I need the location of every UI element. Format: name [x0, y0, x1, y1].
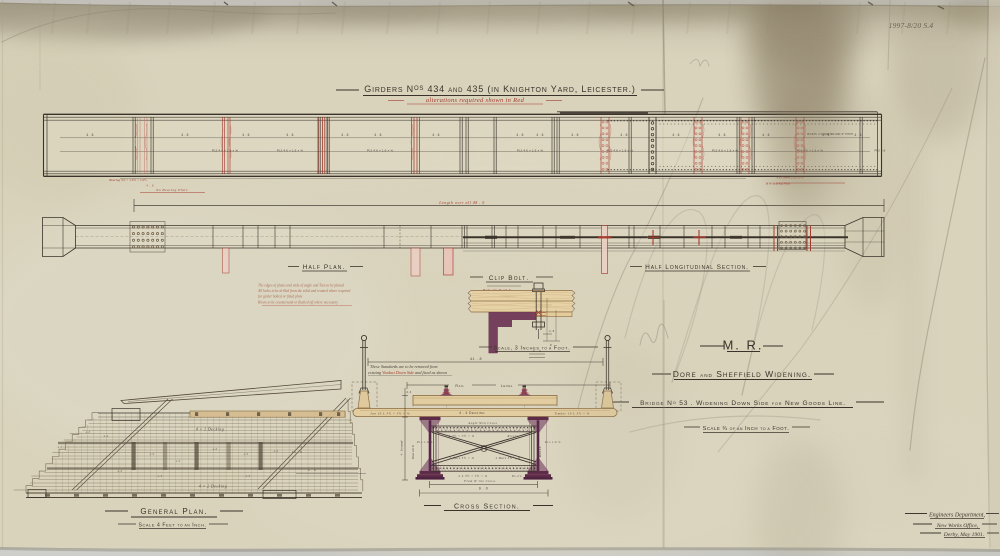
svg-text:4 . 6: 4 . 6	[620, 133, 627, 137]
svg-text:2 Bars 3½ × ⅜: 2 Bars 3½ × ⅜	[496, 456, 521, 460]
svg-text:4.6: 4.6	[213, 448, 218, 451]
svg-text:PLS 4.6 × 1.6 × ⅜: PLS 4.6 × 1.6 × ⅜	[607, 149, 633, 153]
svg-text:Angle WEB CROSS: Angle WEB CROSS	[467, 421, 497, 425]
svg-text:From W THE CROSS: From W THE CROSS	[463, 479, 496, 483]
svg-text:Rivet 4.6 W: Rivet 4.6 W	[411, 445, 415, 460]
svg-text:2 L 3½ × 3½ × ⅜: 2 L 3½ × 3½ × ⅜	[459, 474, 488, 478]
svg-text:4 . 6: 4 . 6	[374, 133, 381, 137]
svg-text:4 . 6: 4 . 6	[571, 133, 578, 137]
svg-text:4 . 4 DECKING: 4 . 4 DECKING	[459, 411, 485, 415]
svg-text:Rivets to be countersunk or fl: Rivets to be countersunk or flushed off …	[257, 300, 338, 304]
svg-text:2 Bars 3½ × ⅜: 2 Bars 3½ × ⅜	[450, 456, 475, 460]
svg-text:4 . 6: 4 . 6	[516, 133, 523, 137]
svg-text:CLIP BOLT.: CLIP BOLT.	[489, 275, 530, 282]
svg-text:4 . 6: 4 . 6	[286, 133, 293, 137]
svg-text:PLS 4.6 × 1.6 × ⅜: PLS 4.6 × 1.6 × ⅜	[212, 149, 238, 153]
svg-text:1.6: 1.6	[549, 329, 555, 333]
svg-text:4 . 6: 4 . 6	[308, 468, 316, 472]
svg-text:Jun 10 L 3½ × 3½ × ⅜: Jun 10 L 3½ × 3½ × ⅜	[370, 412, 410, 416]
svg-text:M. R.: M. R.	[722, 338, 763, 353]
svg-text:PLS 1.6 ⅜: PLS 1.6 ⅜	[544, 441, 561, 444]
svg-text:CROSS SECTION.: CROSS SECTION.	[454, 504, 520, 511]
svg-text:LEVEL: LEVEL	[501, 384, 513, 388]
svg-text:4.6: 4.6	[104, 435, 109, 438]
svg-text:2 L 3½ × 3½ × ⅜: 2 L 3½ × 3½ × ⅜	[446, 434, 475, 438]
svg-text:PLS 4.6: PLS 4.6	[875, 149, 886, 153]
svg-text:PLATE: PLATE	[511, 474, 522, 478]
svg-text:4 . 6: 4 . 6	[146, 184, 154, 188]
svg-text:RAIL: RAIL	[455, 384, 464, 388]
svg-text:4.6: 4.6	[150, 453, 155, 456]
svg-text:4.6: 4.6	[158, 475, 163, 478]
svg-text:4 . 6: 4 . 6	[242, 133, 249, 137]
svg-text:PLS 1.6 ⅜: PLS 1.6 ⅜	[416, 441, 433, 444]
svg-text:4 × 2 Decking: 4 × 2 Decking	[199, 485, 227, 489]
svg-text:4 . 6: 4 . 6	[762, 133, 769, 137]
svg-text:41 . 8: 41 . 8	[470, 357, 482, 361]
svg-text:New Works Office,: New Works Office,	[936, 522, 979, 529]
svg-text:The edges of plates and ends o: The edges of plates and ends of angle an…	[258, 284, 344, 288]
svg-text:Bearing 5.0 × 1.9½ × 1.0½: Bearing 5.0 × 1.9½ × 1.0½	[109, 178, 147, 182]
svg-text:4.6: 4.6	[58, 446, 63, 449]
svg-text:14 . 6: 14 . 6	[292, 450, 303, 454]
svg-text:4 . 6: 4 . 6	[341, 133, 348, 137]
svg-text:existing Viaduct Down Side and: existing Viaduct Down Side and fixed as …	[368, 370, 447, 375]
svg-text:HALF PLAN.: HALF PLAN.	[303, 264, 346, 271]
svg-text:PLS 4.6 × 1.6 × ⅜: PLS 4.6 × 1.6 × ⅜	[367, 149, 393, 153]
svg-text:All holes to be drilled from t: All holes to be drilled from the solid a…	[257, 289, 350, 293]
svg-text:4.4: 4.4	[406, 390, 411, 394]
svg-text:4.6: 4.6	[246, 475, 251, 478]
svg-text:No Bearing Plate: No Bearing Plate	[155, 188, 188, 192]
svg-text:HALF LONGITUDINAL SECTION.: HALF LONGITUDINAL SECTION.	[645, 264, 749, 271]
svg-text:PLS 4.6 × 1.6 × ⅜: PLS 4.6 × 1.6 × ⅜	[277, 149, 303, 153]
svg-text:4 . 6 round: 4 . 6 round	[400, 440, 404, 455]
svg-text:4.6: 4.6	[244, 453, 249, 456]
svg-text:4 . 6: 4 . 6	[86, 133, 93, 137]
svg-text:4.6: 4.6	[176, 460, 181, 463]
svg-text:4 . 6: 4 . 6	[479, 448, 487, 452]
svg-text:for girder bolted or fitted pl: for girder bolted or fitted plate	[258, 295, 303, 299]
svg-text:4.6: 4.6	[86, 431, 91, 434]
svg-text:4 . 6: 4 . 6	[536, 133, 543, 137]
svg-text:Rivet 4.6: Rivet 4.6	[538, 446, 542, 458]
svg-text:PLS 4.6 × 1.6 × ⅜: PLS 4.6 × 1.6 × ⅜	[712, 149, 738, 153]
svg-text:4 . 6: 4 . 6	[432, 133, 439, 137]
svg-text:These Standards are to be remo: These Standards are to be removed from	[370, 364, 438, 369]
svg-text:1997-8/20 S.4: 1997-8/20 S.4	[889, 21, 934, 30]
svg-text:4 × 2 Decking: 4 × 2 Decking	[196, 428, 224, 432]
svg-text:4.6: 4.6	[298, 446, 303, 449]
svg-text:alterations required shown in: alterations required shown in Red	[426, 97, 525, 104]
svg-text:9 . 0: 9 . 0	[479, 487, 489, 491]
svg-text:PLS 4.6 × 1.6 × ⅜: PLS 4.6 × 1.6 × ⅜	[517, 149, 543, 153]
svg-text:4.6: 4.6	[118, 470, 123, 473]
svg-text:RIVETS: RIVETS	[506, 434, 518, 438]
svg-text:Length over all 48 . 0: Length over all 48 . 0	[438, 200, 484, 205]
svg-text:Derby, May 1901.: Derby, May 1901.	[943, 532, 984, 538]
svg-text:4 . 6: 4 . 6	[718, 133, 725, 137]
svg-text:Engineers Department,: Engineers Department,	[928, 513, 985, 519]
svg-text:4 . 6: 4 . 6	[181, 133, 188, 137]
svg-text:4.6: 4.6	[274, 450, 279, 453]
svg-text:4 . 6: 4 . 6	[854, 133, 861, 137]
svg-text:4 . 6: 4 . 6	[672, 133, 679, 137]
